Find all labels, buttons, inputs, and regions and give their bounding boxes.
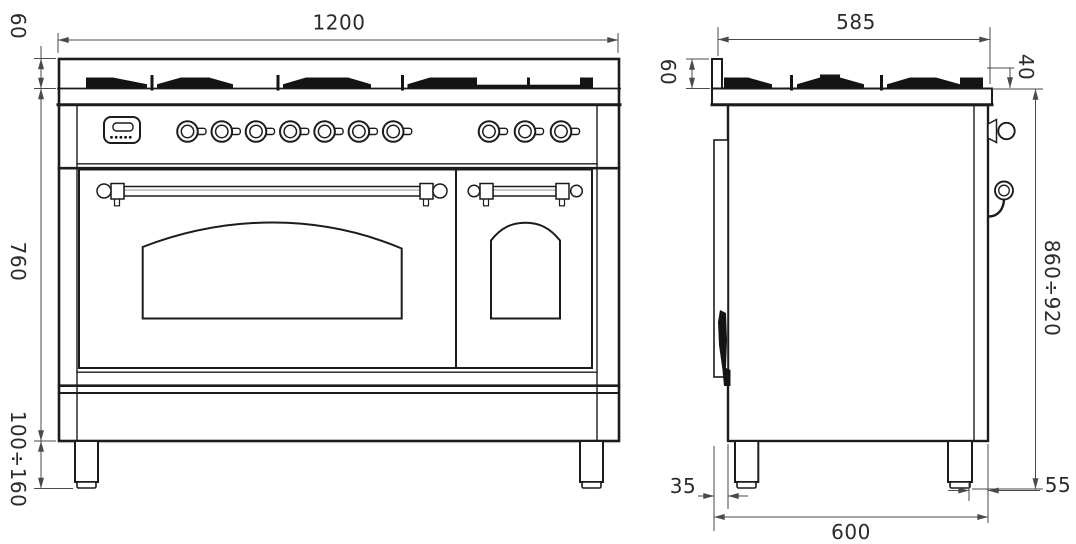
drawing-canvas: 1200 60 760 100÷160 585: [0, 0, 1076, 544]
dim-label-rear-clearance: 35: [670, 474, 696, 498]
dim-label-hob-height: 60: [6, 13, 30, 39]
dim-label-top-depth: 585: [836, 10, 876, 34]
timer-display: [104, 117, 140, 143]
dim-label-legs-height: 100÷160: [6, 411, 30, 508]
dim-label-overall-width: 1200: [313, 11, 366, 35]
dim-label-height-to-worktop: 860÷920: [1040, 240, 1064, 337]
technical-drawing-page: 1200 60 760 100÷160 585: [0, 0, 1076, 544]
front-leg-left: [75, 441, 98, 488]
side-leg-rear: [735, 441, 758, 488]
front-leg-right: [580, 441, 603, 488]
dim-label-front-leg-inset: 55: [1045, 473, 1071, 497]
dim-label-body-height: 760: [6, 242, 30, 282]
dim-label-grate-height: 40: [1014, 54, 1038, 80]
dim-label-backguard-height: 60: [656, 59, 680, 85]
side-leg-front: [948, 441, 972, 488]
worktop: [712, 89, 992, 105]
dim-label-overall-depth: 600: [831, 520, 871, 544]
backguard: [712, 59, 722, 89]
